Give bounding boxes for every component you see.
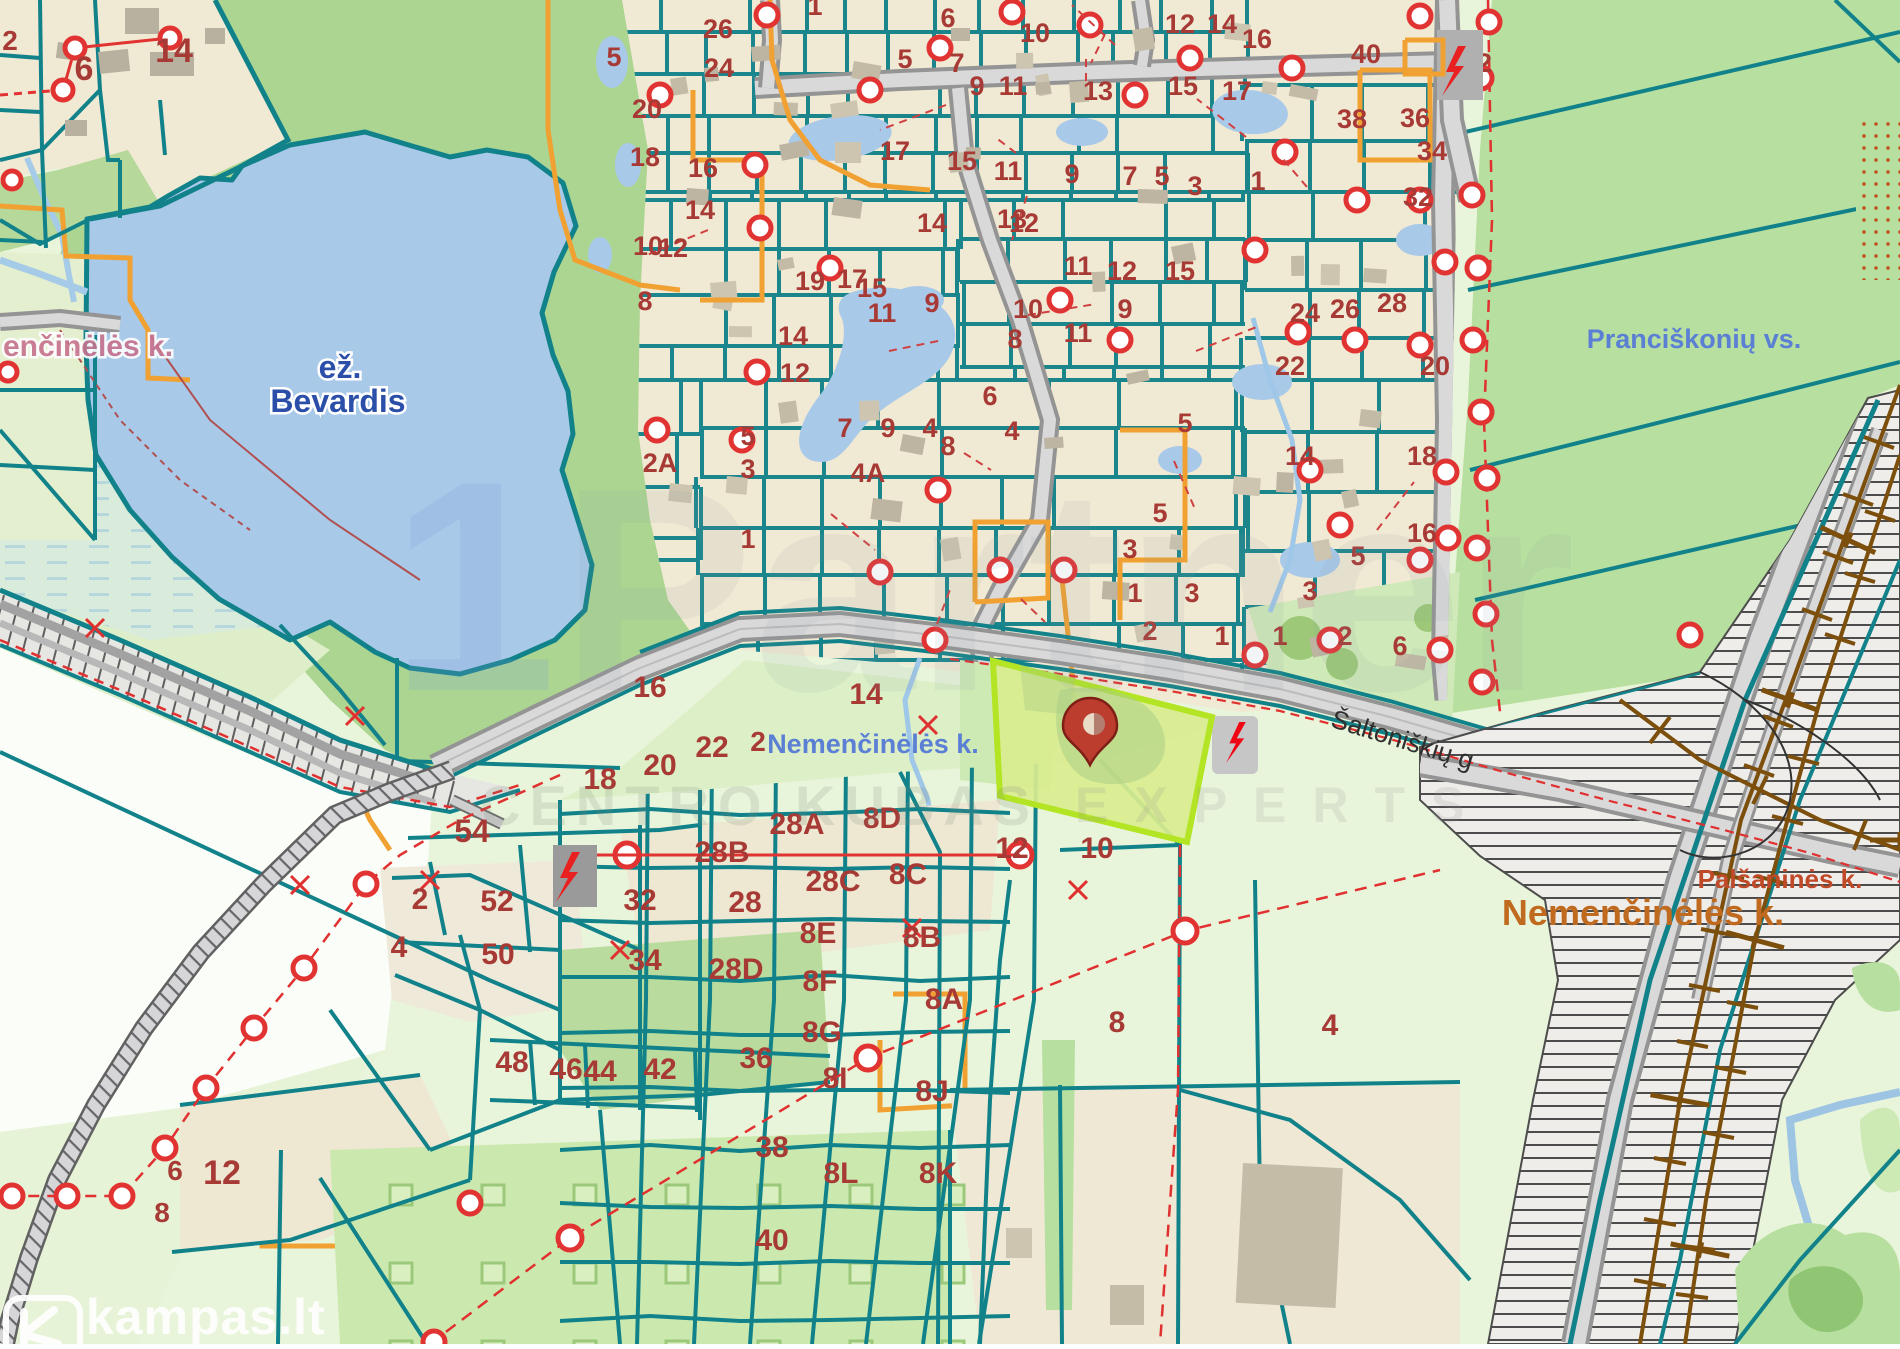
svg-text:48: 48 [495,1046,528,1079]
svg-text:8K: 8K [919,1157,958,1190]
svg-text:34: 34 [1417,136,1447,166]
svg-text:38: 38 [755,1131,788,1164]
svg-text:enčinėlės k.: enčinėlės k. [3,330,173,363]
svg-text:32: 32 [623,884,656,917]
svg-text:EXPERTS: EXPERTS [1075,777,1490,833]
svg-text:7: 7 [1122,161,1137,191]
svg-text:14: 14 [778,321,808,351]
svg-text:38: 38 [1337,104,1367,134]
svg-text:8F: 8F [802,965,837,998]
svg-text:CENTRO KUBAS: CENTRO KUBAS [480,774,1039,837]
svg-text:50: 50 [481,938,514,971]
svg-text:24: 24 [704,53,734,83]
svg-text:8B: 8B [903,921,941,954]
svg-text:26: 26 [1330,294,1360,324]
svg-text:9: 9 [1117,294,1132,324]
svg-text:44: 44 [583,1055,617,1088]
svg-text:10: 10 [1013,294,1043,324]
svg-text:28: 28 [1377,288,1407,318]
svg-text:8G: 8G [802,1016,842,1049]
svg-text:14: 14 [917,208,947,238]
svg-text:11: 11 [999,71,1028,101]
svg-text:9: 9 [1064,159,1079,189]
svg-text:5: 5 [1154,161,1169,191]
svg-text:3: 3 [1187,171,1202,201]
svg-text:Nemenčinėlės k.: Nemenčinėlės k. [1502,892,1784,933]
svg-text:6: 6 [167,1155,183,1186]
svg-text:17: 17 [1222,76,1252,106]
svg-text:11: 11 [1064,251,1093,281]
svg-text:18: 18 [630,142,660,172]
svg-text:28: 28 [728,886,761,919]
svg-text:12: 12 [780,358,810,388]
svg-text:8A: 8A [925,983,963,1016]
svg-text:24: 24 [1290,298,1320,328]
svg-text:8: 8 [1007,324,1022,354]
svg-text:19: 19 [795,266,825,296]
svg-text:36: 36 [1400,103,1430,133]
svg-text:13: 13 [1083,76,1113,106]
svg-text:12: 12 [1165,9,1195,39]
svg-text:12: 12 [1107,256,1137,286]
svg-text:20: 20 [632,94,662,124]
svg-text:28B: 28B [694,836,749,869]
svg-text:6: 6 [982,381,997,411]
svg-text:9: 9 [924,288,939,318]
svg-text:34: 34 [628,944,662,977]
svg-text:14: 14 [685,195,715,225]
svg-text:15: 15 [947,146,977,176]
svg-text:8J: 8J [915,1075,948,1108]
svg-text:11: 11 [1064,318,1093,348]
svg-text:5: 5 [606,42,621,72]
svg-text:36: 36 [739,1042,772,1075]
svg-text:14: 14 [155,32,193,70]
svg-text:1: 1 [1250,166,1265,196]
svg-text:12: 12 [658,233,688,263]
svg-text:12: 12 [1009,208,1039,238]
svg-text:10: 10 [1080,832,1113,865]
svg-text:8L: 8L [823,1157,858,1190]
svg-text:8: 8 [154,1197,170,1228]
svg-text:14: 14 [1207,9,1237,39]
svg-text:8E: 8E [800,917,837,950]
svg-text:12: 12 [203,1154,241,1192]
svg-text:10: 10 [1020,18,1050,48]
svg-text:46: 46 [549,1053,582,1086]
svg-text:9: 9 [969,71,984,101]
svg-text:40: 40 [755,1224,788,1257]
svg-text:32: 32 [1403,182,1433,212]
svg-text:40: 40 [1351,39,1381,69]
svg-text:1: 1 [390,418,557,754]
svg-text:15: 15 [1165,256,1195,286]
svg-text:22: 22 [1275,351,1305,381]
svg-text:8I: 8I [822,1062,847,1095]
svg-text:kampas.lt: kampas.lt [86,1289,326,1344]
svg-text:17: 17 [880,136,910,166]
svg-text:6: 6 [75,50,94,88]
svg-text:5: 5 [897,44,912,74]
svg-text:8: 8 [637,286,652,316]
svg-text:16: 16 [1242,24,1272,54]
svg-text:1: 1 [807,0,822,21]
svg-text:7: 7 [949,48,964,78]
svg-text:52: 52 [480,885,513,918]
svg-text:11: 11 [868,298,897,328]
svg-text:8C: 8C [889,858,927,891]
svg-text:16: 16 [688,153,718,183]
svg-text:Pranciškonių vs.: Pranciškonių vs. [1587,324,1802,354]
svg-text:4: 4 [391,931,408,964]
svg-text:Palšaninės k.: Palšaninės k. [1698,864,1863,894]
svg-text:6: 6 [940,3,955,33]
svg-text:42: 42 [643,1053,676,1086]
svg-text:8: 8 [1109,1006,1126,1039]
svg-text:11: 11 [994,156,1023,186]
svg-text:2: 2 [412,883,429,916]
svg-text:Partner: Partner [560,428,1575,752]
svg-text:20: 20 [1420,351,1450,381]
svg-text:26: 26 [703,14,733,44]
svg-text:4: 4 [1322,1009,1339,1042]
svg-text:2: 2 [2,25,18,56]
svg-text:15: 15 [1168,71,1198,101]
svg-text:28D: 28D [708,953,763,986]
svg-text:ež.: ež. [319,349,362,385]
svg-text:28C: 28C [805,865,860,898]
svg-text:Bevardis: Bevardis [270,383,405,419]
